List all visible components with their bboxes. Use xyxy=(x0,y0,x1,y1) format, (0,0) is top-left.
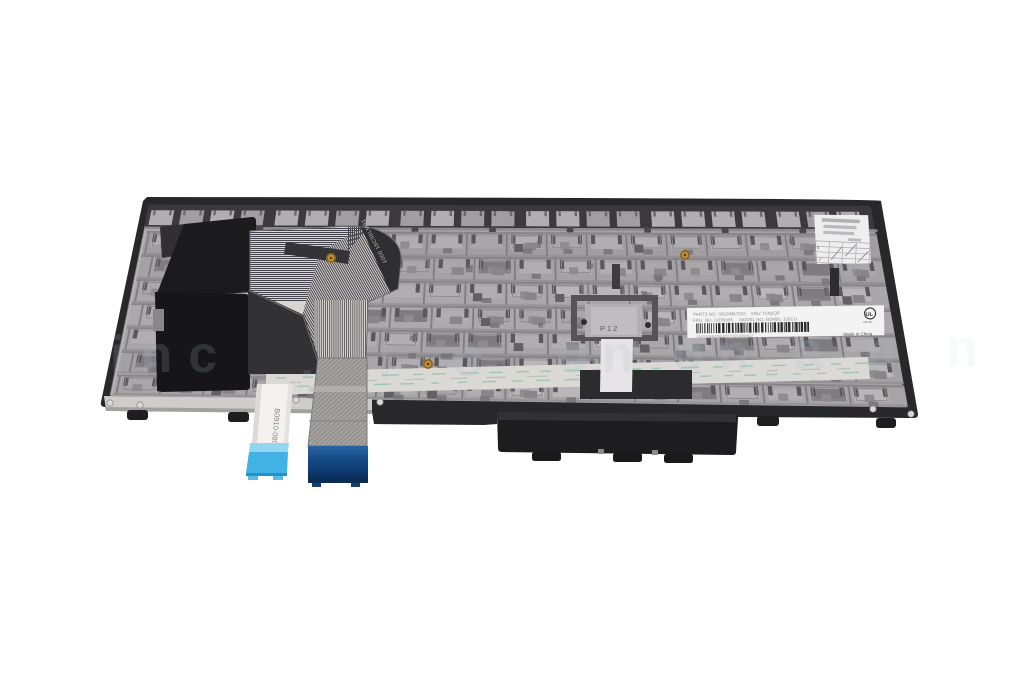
svg-text:n: n xyxy=(864,321,910,379)
svg-text:UL: UL xyxy=(866,312,874,318)
svg-text:inc: inc xyxy=(110,326,233,384)
svg-text:✓: ✓ xyxy=(818,257,822,263)
svg-text:a: a xyxy=(794,322,837,380)
svg-text:n: n xyxy=(946,320,978,378)
svg-text:.: . xyxy=(300,332,314,390)
svg-text:on: on xyxy=(672,324,764,382)
svg-text::: : xyxy=(376,332,393,390)
svg-text:o: o xyxy=(452,330,496,388)
svg-text:4: 4 xyxy=(816,245,819,251)
svg-text:on: on xyxy=(556,326,648,384)
